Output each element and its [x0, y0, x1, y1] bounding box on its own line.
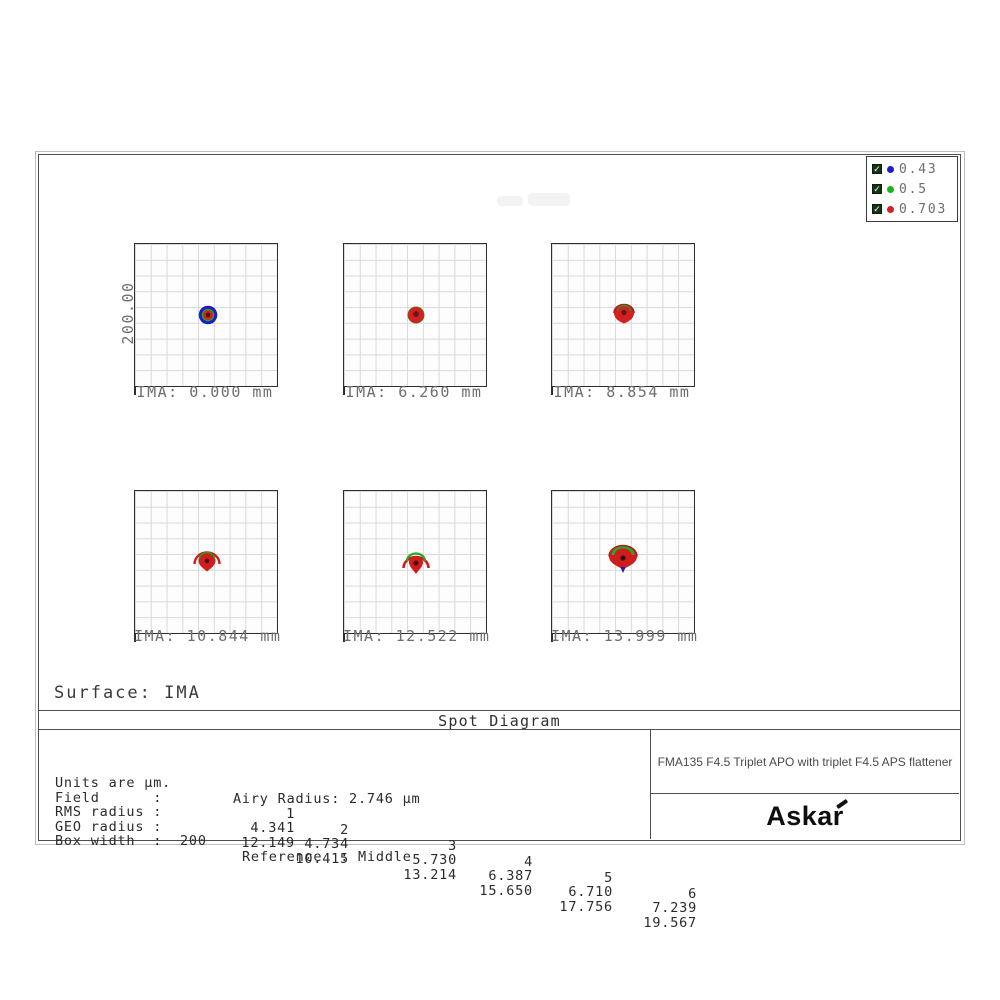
- geo-value: 17.756: [523, 899, 613, 915]
- stats-row-rms: RMS radius : 4.341 4.734 5.730 6.387 6.7…: [55, 788, 655, 802]
- wavelength-value: 0.5: [899, 182, 928, 197]
- stats-row-field: Field : 1 2 3 4 5 6: [55, 774, 655, 788]
- spot-cluster: [603, 539, 643, 579]
- spot-grid-field-1: [134, 243, 278, 387]
- ima-label: IMA: 6.260 mm: [343, 383, 485, 401]
- wavelength-value: 0.43: [899, 162, 938, 177]
- watermark-smudge: [497, 196, 523, 206]
- geo-value: 13.214: [367, 867, 457, 883]
- spot-grid-field-2: [343, 243, 487, 387]
- ima-label: IMA: 8.854 mm: [551, 383, 693, 401]
- box-width-label: Box width : 200: [55, 833, 207, 849]
- lens-description-cell: FMA135 F4.5 Triplet APO with triplet F4.…: [651, 730, 959, 793]
- checkbox-icon[interactable]: [872, 204, 882, 214]
- spot-cluster: [396, 544, 436, 584]
- watermark-smudge: [528, 193, 570, 206]
- divider: [39, 710, 960, 711]
- ima-label: IMA: 10.844 mm: [134, 627, 276, 645]
- brand-cell: Askar: [651, 794, 959, 839]
- geo-value: 15.650: [443, 883, 533, 899]
- legend-row-0703: 0.703: [867, 200, 957, 218]
- spot-cluster-axial: [188, 295, 228, 335]
- surface-label: Surface: IMA: [54, 683, 201, 703]
- askar-logo: Askar: [766, 801, 844, 832]
- checkbox-icon[interactable]: [872, 164, 882, 174]
- legend-row-043: 0.43: [867, 160, 957, 178]
- reference-label: Reference : Middle: [242, 849, 412, 865]
- ima-label: IMA: 0.000 mm: [134, 383, 276, 401]
- spot-grid-field-4: [134, 490, 278, 634]
- ima-label: IMA: 12.522 mm: [343, 627, 485, 645]
- page-title: Spot Diagram: [39, 712, 960, 730]
- stats-row-geo: GEO radius : 12.149 10.415 13.214 15.650…: [55, 803, 655, 817]
- spot-grid-field-3: [551, 243, 695, 387]
- stats-row-units: Units are µm. Airy Radius: 2.746 µm: [55, 759, 655, 773]
- stats-row-boxwidth: Box width : 200 Reference : Middle: [55, 817, 655, 831]
- wavelength-value: 0.703: [899, 202, 947, 217]
- wavelength-dot-red: [887, 206, 894, 213]
- legend-row-05: 0.5: [867, 180, 957, 198]
- spot-cluster: [396, 295, 436, 335]
- ima-label: IMA: 13.999 mm: [551, 627, 693, 645]
- checkbox-icon[interactable]: [872, 184, 882, 194]
- wavelength-legend: 0.43 0.5 0.703: [866, 156, 958, 222]
- spot-grid-field-6: [551, 490, 695, 634]
- wavelength-dot-blue: [887, 166, 894, 173]
- geo-value: 19.567: [607, 915, 697, 931]
- askar-logo-text: Askar: [766, 801, 844, 831]
- spot-cluster: [187, 541, 227, 581]
- spot-cluster: [604, 294, 644, 334]
- spot-grid-field-5: [343, 490, 487, 634]
- lens-description: FMA135 F4.5 Triplet APO with triplet F4.…: [658, 755, 953, 769]
- wavelength-dot-green: [887, 186, 894, 193]
